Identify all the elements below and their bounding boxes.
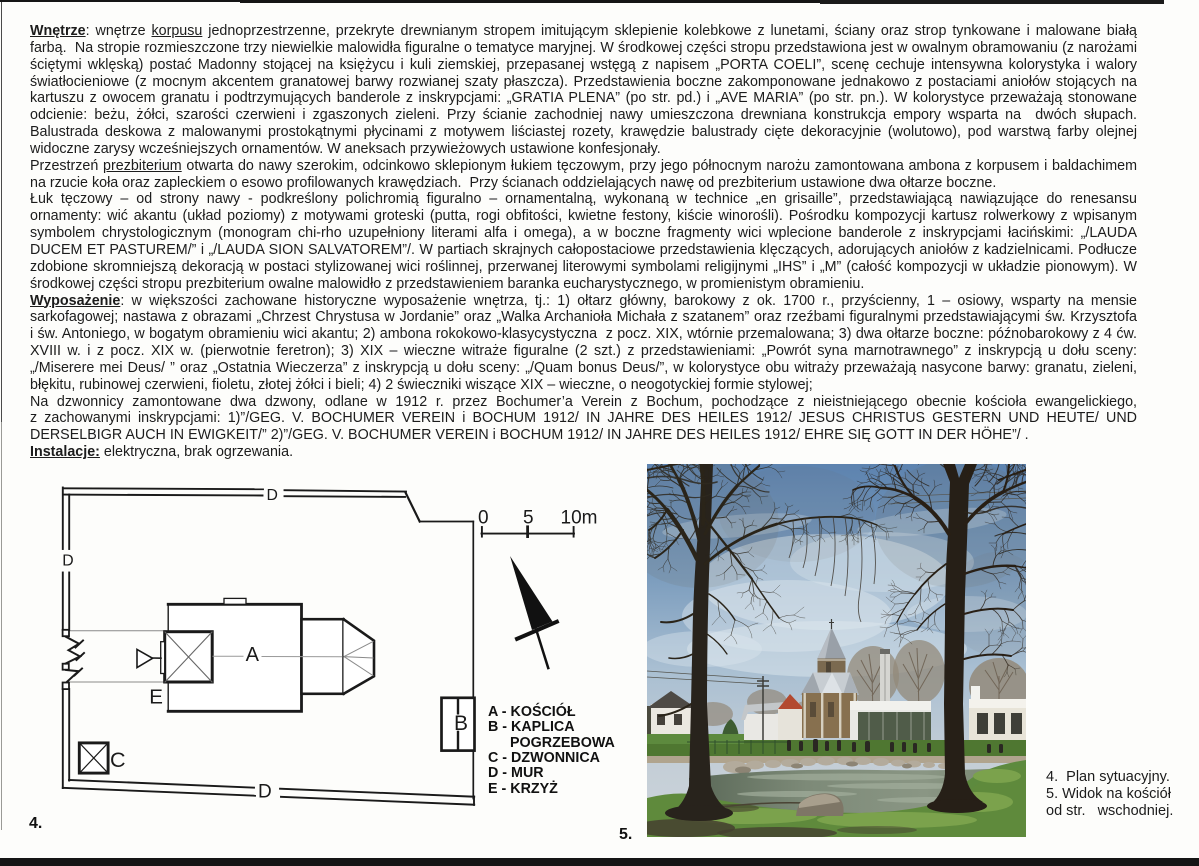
svg-text:10m: 10m <box>561 507 598 528</box>
svg-text:D: D <box>62 553 73 570</box>
svg-text:D: D <box>258 782 272 803</box>
svg-text:5: 5 <box>523 507 534 528</box>
svg-text:0: 0 <box>478 507 489 528</box>
svg-text:E: E <box>149 685 163 708</box>
svg-text:C: C <box>110 748 126 772</box>
svg-text:D: D <box>267 487 278 504</box>
svg-text:B: B <box>454 712 468 735</box>
svg-text:A: A <box>246 644 260 666</box>
